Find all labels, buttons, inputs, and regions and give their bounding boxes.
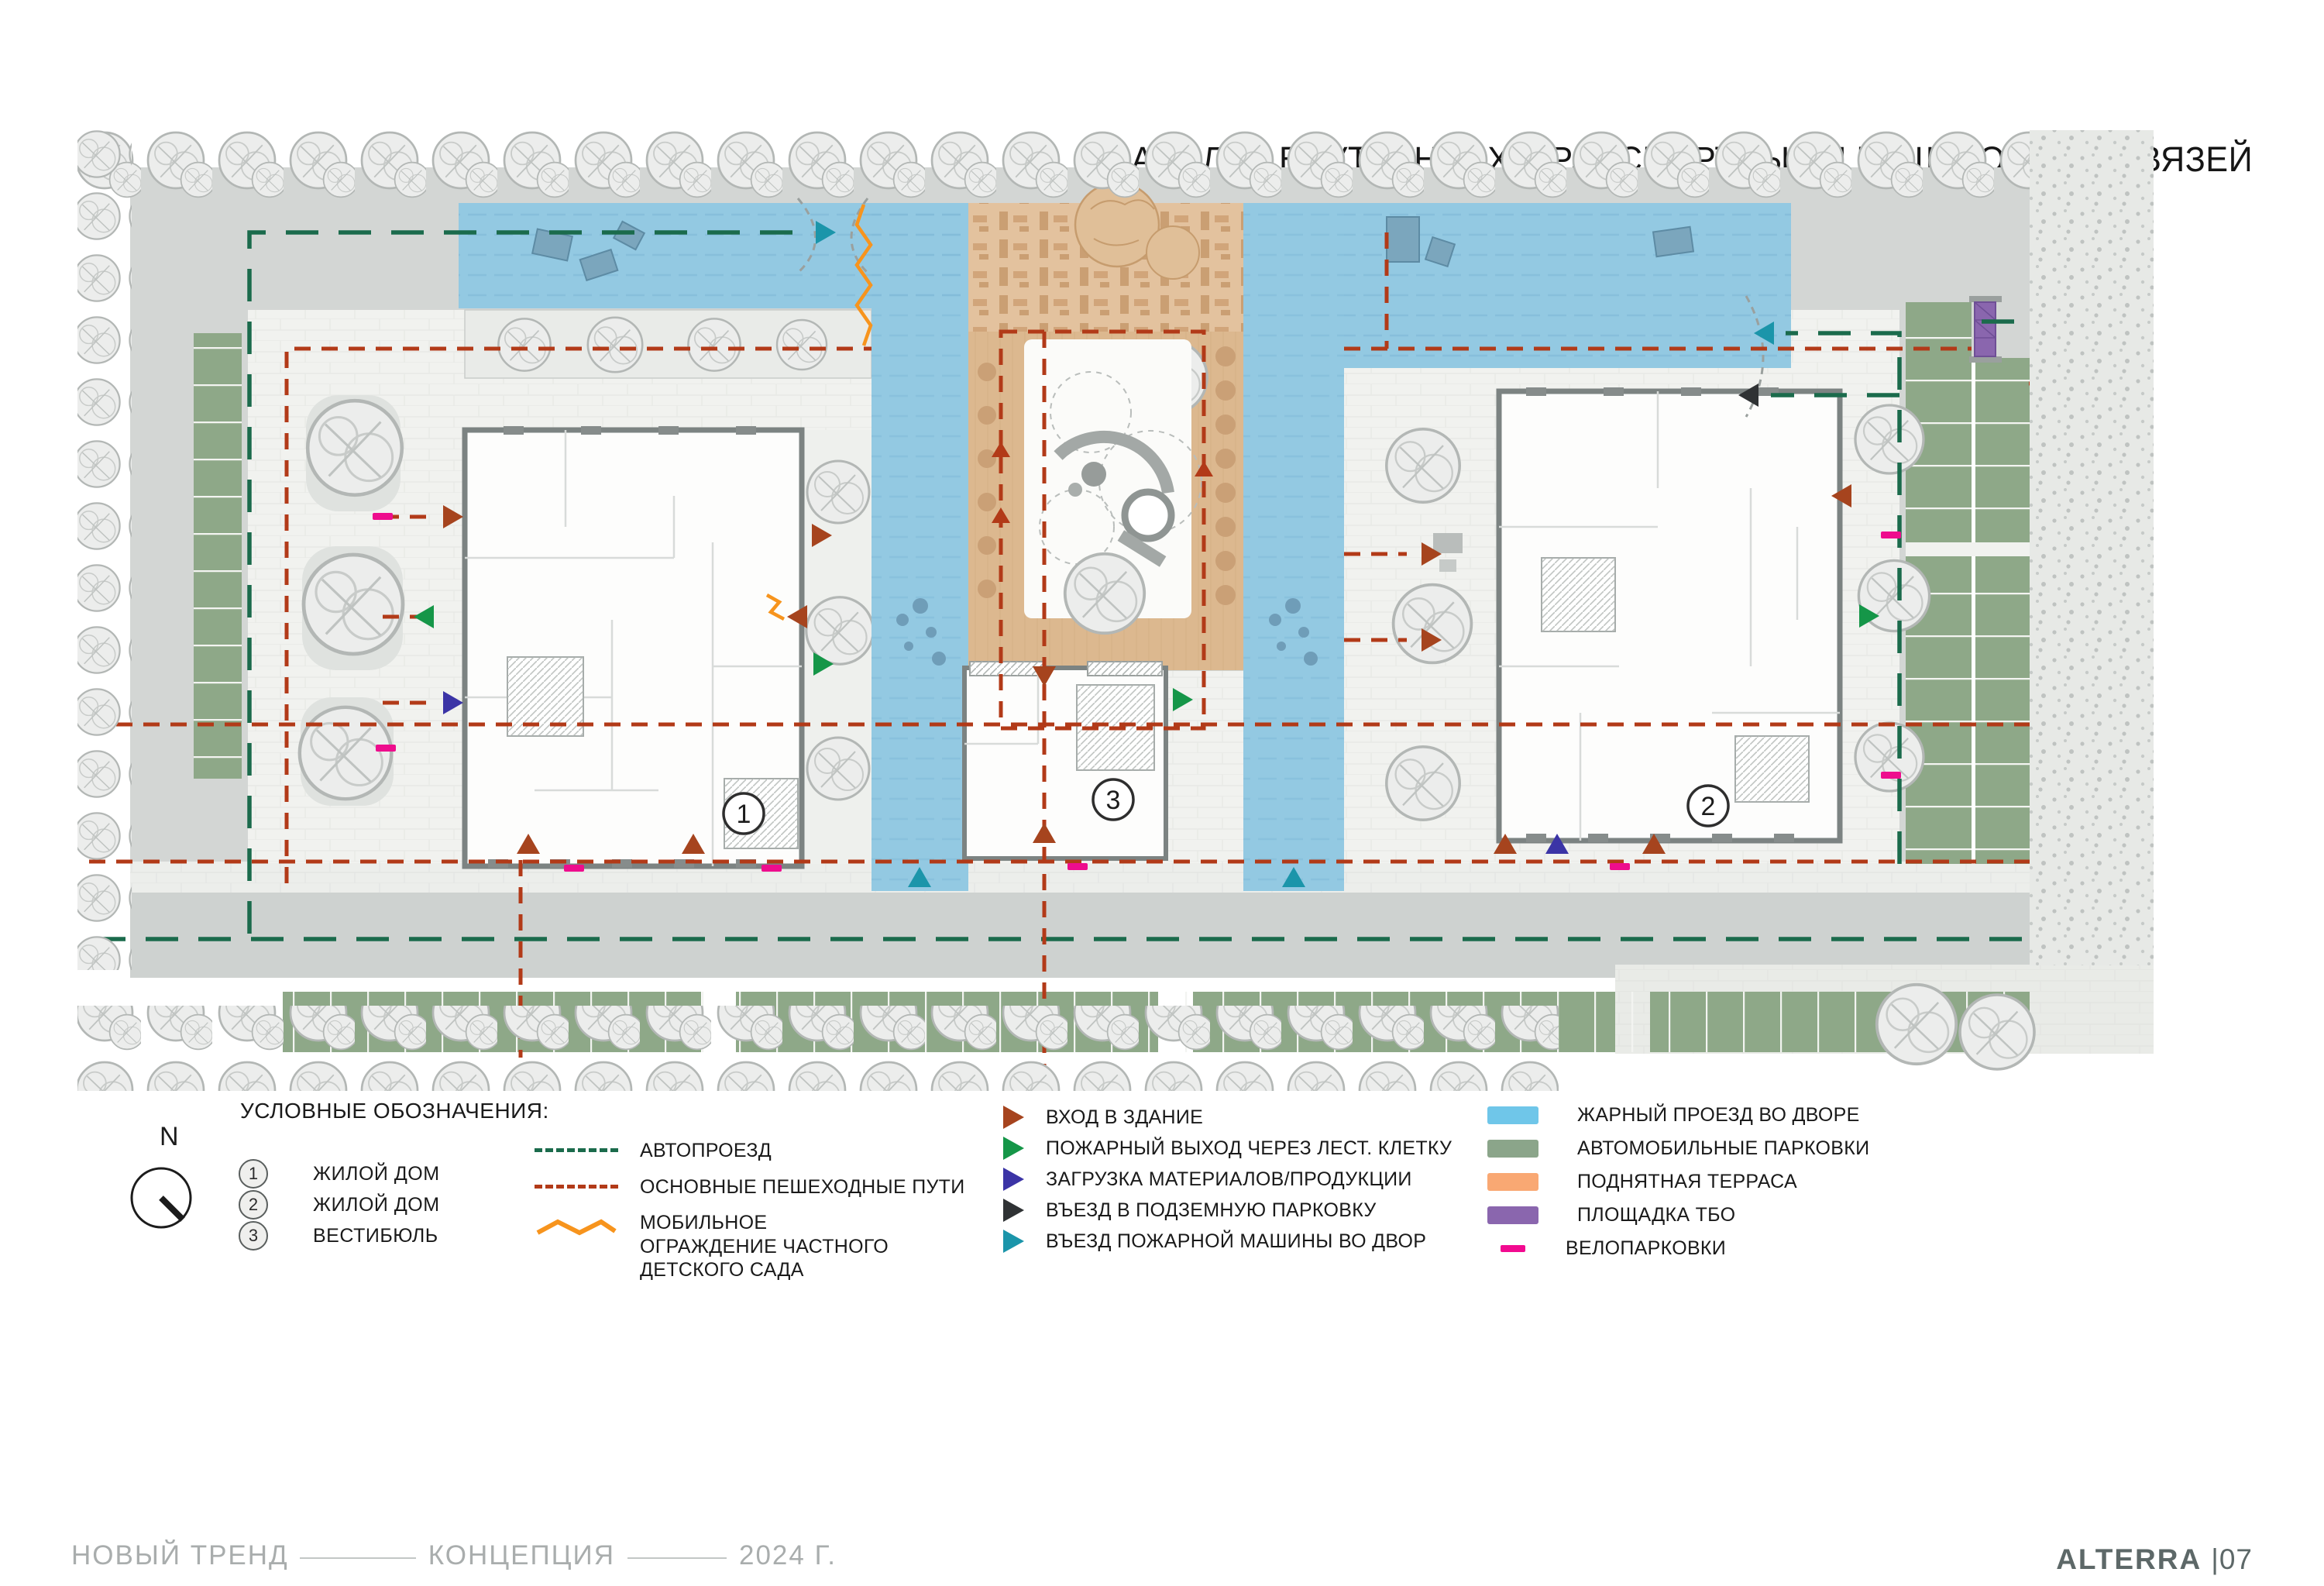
legend-heading: УСЛОВНЫЕ ОБОЗНАЧЕНИЯ: [240, 1099, 549, 1123]
list-item: ЗАГРУЗКА МАТЕРИАЛОВ/ПРОДУКЦИИ [1003, 1164, 1452, 1195]
list-item: ПОДНЯТНАЯ ТЕРРАСА [1487, 1165, 1869, 1199]
terrace-swatch [1487, 1173, 1538, 1191]
list-item: 3 ВЕСТИБЮЛЬ [239, 1220, 440, 1251]
entrance-arrow-icon [1003, 1106, 1024, 1129]
list-item: 2 ЖИЛОЙ ДОМ [239, 1189, 440, 1220]
tbo-swatch [1487, 1206, 1538, 1224]
list-item: АВТОПРОЕЗД [535, 1139, 964, 1163]
parking-left [194, 333, 242, 779]
legend-line-items: АВТОПРОЕЗД ОСНОВНЫЕ ПЕШЕХОДНЫЕ ПУТИ МОБИ… [535, 1139, 964, 1295]
list-item: ПЛОЩАДКА ТБО [1487, 1199, 1869, 1232]
badge-2: 2 [239, 1190, 268, 1220]
list-item: ПОЖАРНЫЙ ВЫХОД ЧЕРЕЗ ЛЕСТ. КЛЕТКУ [1003, 1133, 1452, 1164]
pedestrian-line-icon [535, 1185, 618, 1189]
building-2 [1499, 387, 1840, 842]
divider [627, 1557, 727, 1559]
list-item: ОСНОВНЫЕ ПЕШЕХОДНЫЕ ПУТИ [535, 1175, 964, 1199]
fire-lane-swatch [1487, 1106, 1538, 1124]
footer-left: НОВЫЙ ТРЕНДКОНЦЕПЦИЯ2024 Г. [71, 1540, 837, 1571]
parking-swatch [1487, 1140, 1538, 1158]
badge-3: 3 [239, 1221, 268, 1251]
list-item: ВЪЕЗД ПОЖАРНОЙ МАШИНЫ ВО ДВОР [1003, 1226, 1452, 1257]
project-name: НОВЫЙ ТРЕНД [71, 1540, 289, 1571]
compass-needle [161, 1198, 183, 1220]
trees-left [77, 129, 132, 970]
list-item: АВТОМОБИЛЬНЫЕ ПАРКОВКИ [1487, 1132, 1869, 1165]
sheet: АНАЛИЗ ВНУТРЕННИХ ТРАНСПОРТНЫХ И ПЕШЕХОД… [0, 0, 2324, 1586]
north-label: N [160, 1122, 179, 1151]
divider [300, 1557, 416, 1559]
page-number: |07 [2211, 1543, 2253, 1575]
building-2-label: 2 [1701, 792, 1716, 821]
list-item: ВХОД В ЗДАНИЕ [1003, 1102, 1452, 1133]
building-1-label: 1 [737, 800, 751, 829]
brand-logo: ALTERRA [2056, 1543, 2202, 1575]
underground-parking-arrow-icon [1003, 1199, 1024, 1222]
site-plan: 1 2 3 [70, 124, 2177, 1100]
badge-1: 1 [239, 1159, 268, 1189]
trees-bottom [77, 1006, 1559, 1091]
legend-area-items: ЖАРНЫЙ ПРОЕЗД ВО ДВОРЕ АВТОМОБИЛЬНЫЕ ПАР… [1487, 1099, 1869, 1265]
fire-exit-arrow-icon [1003, 1137, 1024, 1160]
footer-right: ALTERRA|07 [2056, 1543, 2253, 1576]
stage-name: КОНЦЕПЦИЯ [428, 1540, 615, 1571]
zigzag-fence-icon [535, 1216, 618, 1239]
bike-parking-swatch [1501, 1245, 1525, 1252]
fire-truck-arrow-icon [1003, 1230, 1024, 1253]
list-item: ВЕЛОПАРКОВКИ [1487, 1232, 1869, 1265]
legend: N УСЛОВНЫЕ ОБОЗНАЧЕНИЯ: 1 ЖИЛОЙ ДОМ 2 ЖИ… [0, 1085, 2324, 1348]
loading-arrow-icon [1003, 1168, 1024, 1191]
list-item: ЖАРНЫЙ ПРОЕЗД ВО ДВОРЕ [1487, 1099, 1869, 1132]
list-item: МОБИЛЬНОЕ ОГРАЖДЕНИЕ ЧАСТНОГО ДЕТСКОГО С… [535, 1211, 964, 1282]
auto-route-line-icon [535, 1148, 618, 1152]
list-item: ВЪЕЗД В ПОДЗЕМНУЮ ПАРКОВКУ [1003, 1195, 1452, 1226]
vestibule [964, 662, 1166, 858]
year: 2024 Г. [739, 1540, 837, 1571]
list-item: 1 ЖИЛОЙ ДОМ [239, 1158, 440, 1189]
legend-arrow-items: ВХОД В ЗДАНИЕ ПОЖАРНЫЙ ВЫХОД ЧЕРЕЗ ЛЕСТ.… [1003, 1102, 1452, 1257]
compass: N [122, 1116, 215, 1255]
vestibule-label: 3 [1106, 786, 1121, 815]
legend-numbered-items: 1 ЖИЛОЙ ДОМ 2 ЖИЛОЙ ДОМ 3 ВЕСТИБЮЛЬ [239, 1158, 440, 1251]
trees-top [77, 129, 2154, 206]
